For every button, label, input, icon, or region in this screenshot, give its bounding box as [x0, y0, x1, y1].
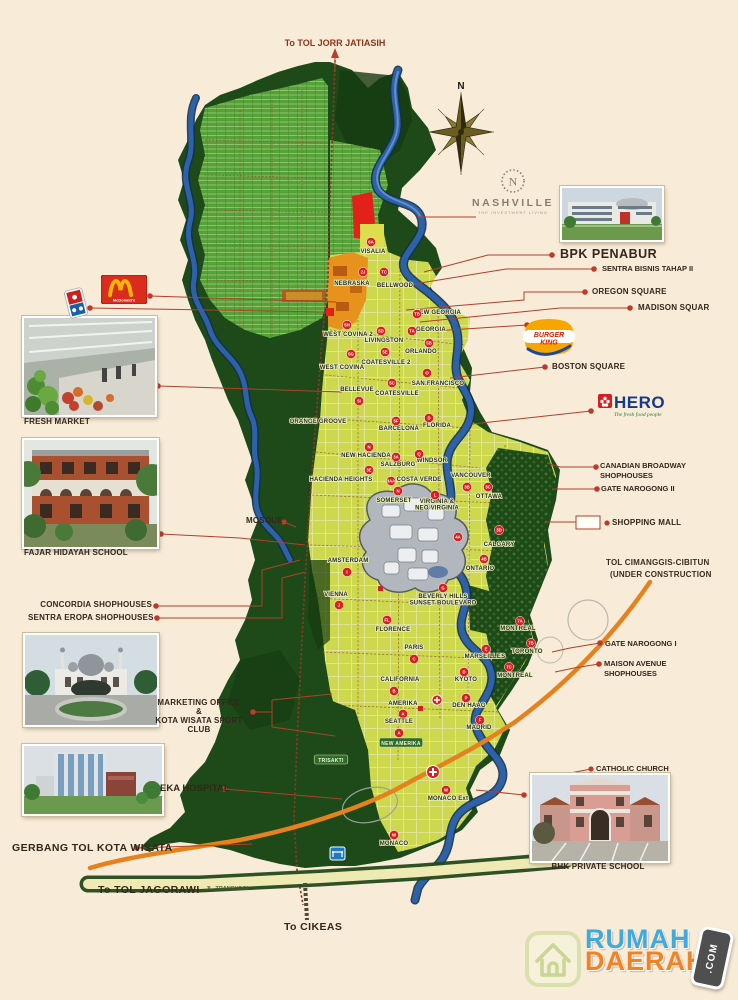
logo-word-daerah: DAERAH [585, 948, 707, 974]
callout-sentra-eropa: SENTRA EROPA SHOPHOUSES [28, 613, 152, 622]
nashville-wreath-icon: N [498, 166, 528, 196]
district-badge: N [364, 442, 373, 451]
svg-text:3AA: 3AA [387, 479, 396, 484]
district-label: CALGARY [484, 542, 515, 548]
district-badge: 5I [354, 396, 363, 405]
district-label: VISALIA [360, 249, 386, 255]
callout-oregon-square: OREGON SQUARE [592, 287, 667, 296]
district-label: LIVINGSTON [365, 338, 404, 344]
district-badge: 5E [380, 347, 389, 356]
district-badge: F [475, 715, 484, 724]
svg-text:BURGER: BURGER [534, 332, 564, 339]
district-label: BARCELONA [379, 426, 420, 432]
callout-madison-square: MADISON SQUAR [638, 303, 710, 312]
eka-hospital-photo [22, 744, 164, 816]
svg-text:5C: 5C [389, 381, 395, 386]
district-label: NEBRASKA [334, 281, 370, 287]
district-label: SOMERSET [376, 498, 411, 504]
callout-mosque: MOSQUE [246, 516, 283, 525]
svg-text:N: N [367, 445, 370, 450]
district-label: OTTAWA [476, 494, 503, 500]
district-badge: 5G [346, 349, 355, 358]
callout-gate-narogong-2: GATE NAROGONG II [601, 484, 675, 493]
hero-logo: HERO The fresh food people [596, 390, 704, 420]
svg-text:5F: 5F [393, 419, 398, 424]
callout-canadian-broadway: CANADIAN BROADWAY [600, 461, 686, 470]
district-label: PARIS [405, 645, 424, 651]
district-badge: 4A [453, 532, 462, 541]
callout-concordia: CONCORDIA SHOPHOUSES [40, 600, 152, 609]
district-label: CALIFORNIA [381, 677, 420, 683]
callout-tol-cimanggis: TOL CIMANGGIS-CIBITUN [606, 558, 709, 567]
district-badge: P [461, 693, 470, 702]
district-badge: 3D [494, 525, 503, 534]
district-badge: B [389, 686, 398, 695]
road-label-transyogi: JL. TRANSYOGI [206, 886, 248, 892]
district-badge: TC [379, 267, 388, 276]
district-pill-label: TRISAKTI [314, 755, 348, 764]
svg-text:TC: TC [381, 270, 387, 275]
svg-text:D: D [427, 416, 430, 421]
road-label-jagorawi: To TOL JAGORAWI [98, 884, 200, 896]
fajar-school-photo [22, 438, 159, 549]
svg-text:NEW AMERIKA: NEW AMERIKA [381, 741, 421, 747]
svg-text:7A: 7A [517, 619, 523, 624]
district-label: NEW GEORGIA [415, 310, 462, 316]
nashville-tagline: THE INVESTMENT LIVING [470, 210, 556, 215]
exit-label-jorr: To TOL JORR JATIASIH [270, 38, 400, 48]
compass-north-letter: N [457, 81, 464, 92]
svg-text:6A: 6A [368, 240, 374, 245]
marketing-office-photo [23, 633, 159, 727]
district-label: AMSTERDAM [328, 558, 369, 564]
svg-text:I: I [346, 570, 347, 575]
svg-text:N: N [396, 489, 399, 494]
svg-text:TA: TA [409, 329, 414, 334]
district-badge: J [334, 600, 343, 609]
callout-boston-square: BOSTON SQUARE [552, 362, 625, 371]
svg-text:TB: TB [414, 312, 420, 317]
district-badge: G [438, 583, 447, 592]
district-badge: TB [412, 309, 421, 318]
district-badge: A [398, 709, 407, 718]
district-badge: 3E [364, 465, 373, 474]
svg-text:3D: 3D [496, 528, 502, 533]
district-badge: I [342, 567, 351, 576]
district-label: AMERIKA [388, 701, 418, 707]
district-label: BELLWOOD [377, 283, 414, 289]
fresh-market-photo [22, 316, 157, 417]
district-badge: Q [414, 449, 423, 458]
district-label: MONTREAL [500, 626, 536, 632]
district-label: VIENNA [324, 592, 348, 598]
district-pill-label: NEW AMERIKA [379, 738, 422, 747]
district-label: COATESVILLE [375, 391, 419, 397]
district-label: COSTA VERDE [397, 477, 442, 483]
district-label: BEVERLY HILLSSUNSET BOULEVARD [410, 594, 477, 607]
district-label: MONACO Ext [428, 796, 468, 802]
callout-canadian-broadway-2: SHOPHOUSES [600, 471, 653, 480]
callout-gerbang-tol: GERBANG TOL KOTA WISATA [12, 842, 173, 854]
district-badge: 7B [526, 638, 535, 647]
district-badge: 3A [391, 452, 400, 461]
dominos-logo [62, 285, 90, 321]
callout-catholic-church: CATHOLIC CHURCH [596, 764, 669, 773]
district-badge: 5F [391, 416, 400, 425]
district-badge: D [424, 413, 433, 422]
district-label: HACIENDA HEIGHTS [310, 477, 373, 483]
house-icon [525, 931, 581, 987]
svg-text:TRISAKTI: TRISAKTI [318, 758, 344, 764]
svg-text:5D: 5D [378, 329, 384, 334]
svg-text:5I: 5I [357, 399, 361, 404]
district-badge: A [394, 728, 403, 737]
north-arrow [331, 48, 339, 58]
callout-bhk-school: BHK PRIVATE SCHOOL [528, 862, 668, 871]
district-badge: L [430, 490, 439, 499]
svg-text:A: A [401, 712, 404, 717]
district-label: DEN HAAG [452, 703, 486, 709]
district-badge: 3B [462, 482, 471, 491]
district-badge: 7C [504, 662, 513, 671]
callout-shopping-mall: SHOPPING MALL [612, 518, 681, 527]
district-label: MONACO [380, 841, 409, 847]
callout-gate-narogong-1: GATE NAROGONG I [605, 639, 677, 648]
callout-tol-cimanggis-2: (UNDER CONSTRUCTION [610, 570, 712, 579]
district-badge: D [459, 667, 468, 676]
bpk-penabur-photo [560, 186, 664, 242]
rumah-daerah-logo: RUMAH DAERAH .COM [525, 928, 733, 990]
callout-fresh-market: FRESH MARKET [24, 417, 90, 426]
district-label: ORLANDO [405, 349, 437, 355]
svg-text:3A: 3A [393, 455, 399, 460]
svg-text:5H: 5H [344, 323, 350, 328]
svg-text:L: L [434, 493, 437, 498]
svg-text:KING: KING [540, 340, 558, 347]
district-label: MONTREAL [497, 673, 533, 679]
district-badge: E [481, 644, 490, 653]
callout-maison-avenue-2: SHOPHOUSES [604, 669, 657, 678]
svg-text:4A: 4A [455, 535, 461, 540]
district-label: GEORGIA [416, 327, 446, 333]
callout-sentra-bisnis: SENTRA BISNIS TAHAP II [602, 264, 693, 273]
district-badge: TA [407, 326, 416, 335]
district-label: VIRGINIA &NEO VIRGINIA [415, 499, 459, 512]
district-label: SALZBURG [381, 462, 416, 468]
svg-text:C: C [412, 657, 415, 662]
svg-text:A: A [397, 731, 400, 736]
callout-bpk-penabur: BPK PENABUR [560, 247, 657, 261]
district-badge: 7A [515, 616, 524, 625]
district-label: WINDSOR [417, 458, 448, 464]
district-label: BELLEVUE [340, 387, 374, 393]
svg-text:HERO: HERO [614, 393, 665, 412]
callout-maison-avenue: MAISON AVENUE [604, 659, 667, 668]
bhk-school-photo [530, 773, 670, 863]
mall-callout-box [576, 516, 600, 529]
svg-text:7C: 7C [506, 665, 512, 670]
callout-eka-hospital: EKA HOSPITAL [160, 783, 230, 794]
district-badge: C [409, 654, 418, 663]
nashville-logo: N NASHVILLE THE INVESTMENT LIVING [470, 166, 556, 215]
svg-text:FL: FL [384, 618, 390, 623]
masterplan-page: VISALIA6ANEBRASKA2JBELLWOODTCNEW GEORGIA… [0, 0, 738, 1000]
district-badge: 3AA [386, 476, 395, 485]
district-badge: 5C [387, 378, 396, 387]
svg-text:N: N [509, 175, 518, 189]
district-badge: 5D [376, 326, 385, 335]
hospital-cross-icon [427, 766, 440, 779]
district-label: COATESVILLE 2 [361, 360, 411, 366]
district-badge: FL [382, 615, 391, 624]
mcdonalds-logo: McDonald's [101, 275, 147, 304]
district-label: FLORIDA [423, 423, 452, 429]
svg-text:B: B [392, 689, 395, 694]
svg-text:McDonald's: McDonald's [113, 298, 136, 303]
district-badge: 5H [342, 320, 351, 329]
svg-text:P: P [465, 696, 468, 701]
district-label: TORONTO [511, 649, 542, 655]
svg-text:5B: 5B [426, 341, 432, 346]
svg-text:5E: 5E [382, 350, 387, 355]
district-label: FLORENCE [376, 627, 411, 633]
svg-text:7B: 7B [528, 641, 534, 646]
district-badge: W [389, 830, 398, 839]
svg-text:5G: 5G [348, 352, 354, 357]
district-label: SAN FRANCISCO [412, 381, 465, 387]
toll-gate-icon [330, 847, 345, 860]
district-label: KYOTO [455, 677, 477, 683]
svg-text:E: E [485, 647, 488, 652]
district-badge: 6A [366, 237, 375, 246]
svg-text:D: D [462, 670, 465, 675]
svg-text:The fresh food people: The fresh food people [614, 411, 662, 418]
svg-text:3E: 3E [366, 468, 371, 473]
district-badge: 3C [483, 482, 492, 491]
district-label: MADRID [466, 725, 492, 731]
district-label: VANCOUVER [451, 473, 491, 479]
svg-text:4B: 4B [481, 557, 487, 562]
district-label: NEW HACIENDA [341, 453, 391, 459]
district-label: SEATTLE [385, 719, 413, 725]
district-label: WEST COVINA [320, 365, 365, 371]
landmark-cross-icon [432, 695, 442, 705]
district-badge: 2J [358, 267, 367, 276]
callout-fajar-school: FAJAR HIDAYAH SCHOOL [24, 548, 128, 557]
district-label: ONTARIO [466, 566, 495, 572]
district-label: MARSEILLES [465, 654, 506, 660]
district-badge: N [393, 486, 402, 495]
svg-text:3C: 3C [485, 485, 491, 490]
district-badge: 4B [479, 554, 488, 563]
svg-text:2J: 2J [361, 270, 366, 275]
svg-text:3B: 3B [464, 485, 470, 490]
district-badge: O [422, 368, 431, 377]
nashville-name: NASHVILLE [470, 197, 556, 209]
district-label: ORANGE GROOVE [290, 419, 347, 425]
district-badge: W [441, 785, 450, 794]
callout-marketing-office: MARKETING OFFICE & KOTA WISATA SPORT CLU… [148, 698, 250, 734]
burger-king-logo: BURGER KING [518, 313, 580, 361]
district-badge: 5B [424, 338, 433, 347]
road-label-cikeas: To CIKEAS [284, 921, 342, 933]
svg-text:F: F [479, 718, 482, 723]
